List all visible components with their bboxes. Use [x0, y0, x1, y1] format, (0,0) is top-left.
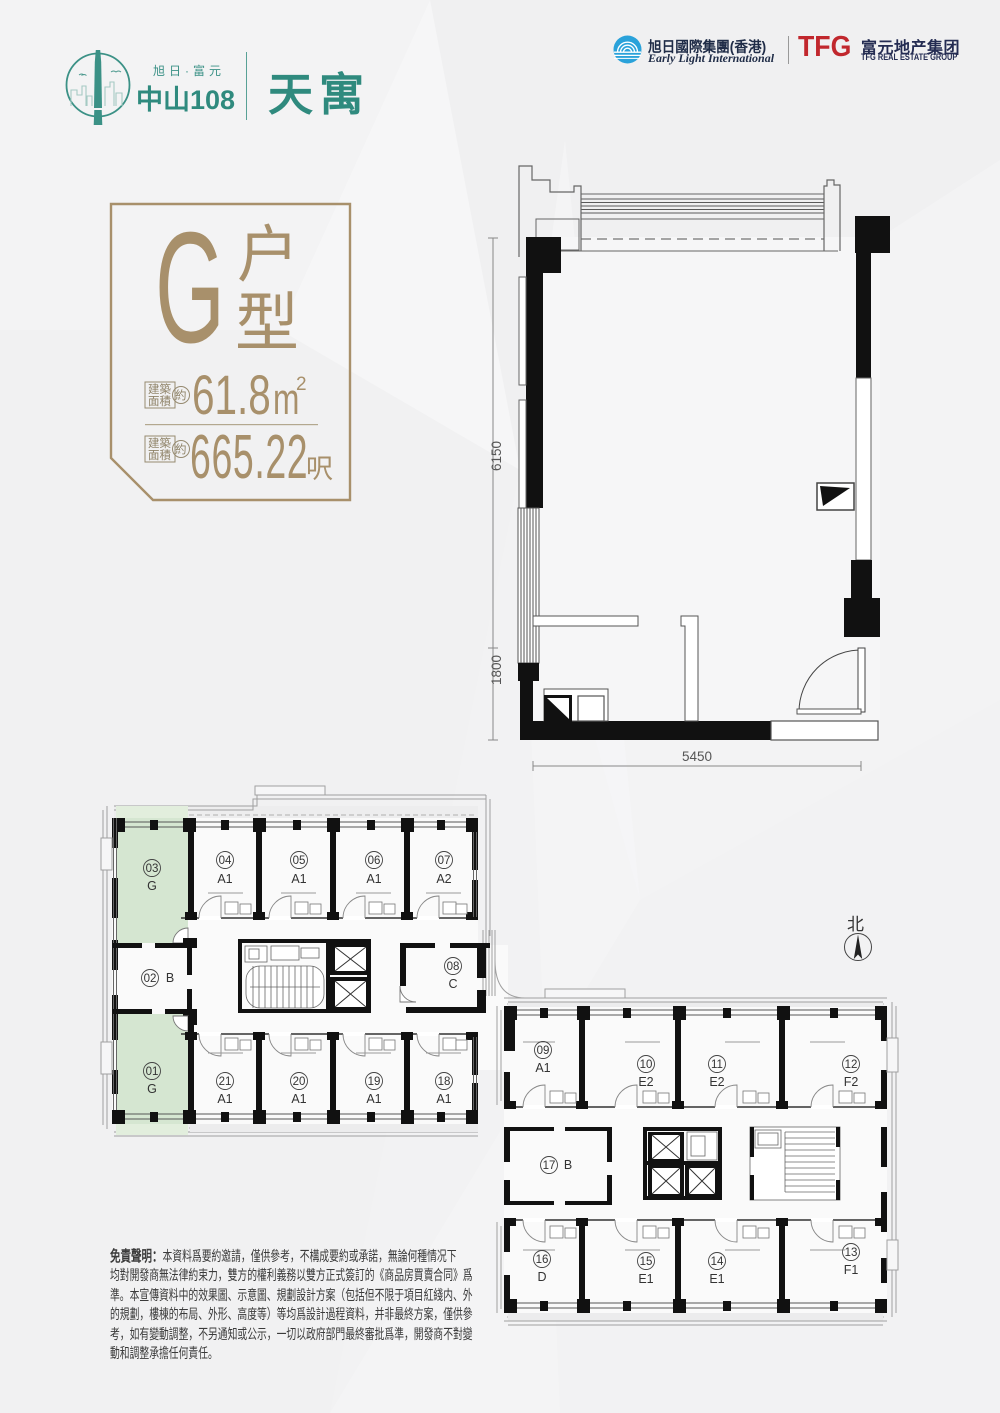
svg-text:F1: F1: [844, 1263, 859, 1277]
svg-text:A1: A1: [366, 1092, 381, 1106]
svg-text:14: 14: [711, 1256, 724, 1268]
svg-text:03: 03: [146, 863, 159, 875]
svg-text:A1: A1: [535, 1061, 550, 1075]
svg-text:E2: E2: [709, 1075, 724, 1089]
svg-text:13: 13: [845, 1247, 858, 1259]
svg-text:B: B: [166, 971, 174, 985]
svg-text:呎: 呎: [306, 454, 333, 484]
svg-text:01: 01: [146, 1066, 159, 1078]
svg-text:04: 04: [219, 855, 232, 867]
svg-text:19: 19: [368, 1076, 381, 1088]
svg-text:建築: 建築: [148, 436, 171, 450]
svg-text:16: 16: [536, 1254, 549, 1266]
svg-text:21: 21: [219, 1076, 232, 1088]
svg-text:15: 15: [640, 1256, 653, 1268]
svg-text:G: G: [155, 201, 225, 377]
svg-text:G: G: [147, 879, 157, 893]
svg-text:02: 02: [144, 973, 157, 985]
svg-text:11: 11: [711, 1059, 723, 1071]
svg-text:F2: F2: [844, 1075, 859, 1089]
svg-text:05: 05: [293, 855, 306, 867]
svg-text:户: 户: [237, 221, 299, 290]
svg-text:E1: E1: [638, 1272, 653, 1286]
svg-text:17: 17: [543, 1160, 556, 1172]
svg-text:A1: A1: [217, 872, 232, 886]
svg-text:C: C: [448, 977, 457, 991]
svg-text:A1: A1: [217, 1092, 232, 1106]
svg-text:約: 約: [175, 442, 187, 456]
svg-text:08: 08: [447, 961, 460, 973]
svg-text:面積: 面積: [148, 448, 171, 462]
svg-text:6150: 6150: [489, 441, 504, 471]
svg-text:D: D: [537, 1270, 546, 1284]
svg-text:B: B: [564, 1158, 572, 1172]
svg-text:A1: A1: [291, 1092, 306, 1106]
svg-text:665.22: 665.22: [190, 421, 308, 491]
svg-text:1800: 1800: [489, 655, 504, 685]
svg-text:06: 06: [368, 855, 381, 867]
svg-text:07: 07: [438, 855, 451, 867]
svg-text:5450: 5450: [682, 749, 712, 764]
svg-text:12: 12: [845, 1059, 858, 1071]
svg-text:A2: A2: [436, 872, 451, 886]
svg-text:61.8: 61.8: [192, 365, 271, 427]
svg-text:G: G: [147, 1082, 157, 1096]
svg-text:E1: E1: [709, 1272, 724, 1286]
svg-text:面積: 面積: [148, 394, 171, 408]
svg-text:約: 約: [175, 388, 187, 402]
svg-text:10: 10: [640, 1059, 653, 1071]
svg-text:2: 2: [296, 374, 307, 395]
svg-text:A1: A1: [291, 872, 306, 886]
svg-text:A1: A1: [436, 1092, 451, 1106]
svg-text:型: 型: [235, 287, 299, 359]
svg-text:建築: 建築: [148, 382, 171, 396]
svg-text:20: 20: [293, 1076, 306, 1088]
svg-text:18: 18: [438, 1076, 451, 1088]
svg-text:E2: E2: [638, 1075, 653, 1089]
svg-text:A1: A1: [366, 872, 381, 886]
svg-text:09: 09: [537, 1045, 550, 1057]
